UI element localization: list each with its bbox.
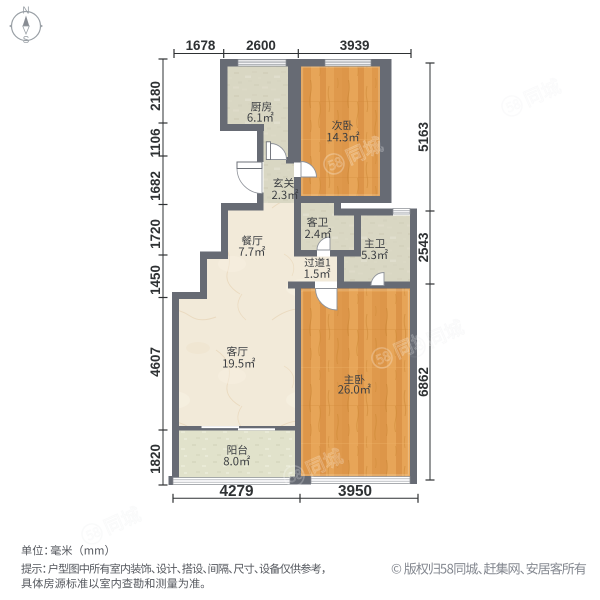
svg-text:1682: 1682	[148, 171, 163, 201]
svg-text:6862: 6862	[416, 367, 431, 397]
svg-text:2543: 2543	[416, 233, 431, 263]
svg-text:4607: 4607	[148, 347, 163, 377]
svg-text:1720: 1720	[148, 219, 163, 249]
svg-text:S: S	[23, 35, 30, 46]
svg-text:1450: 1450	[148, 265, 163, 295]
svg-text:1106: 1106	[148, 128, 163, 157]
svg-text:4279: 4279	[219, 483, 253, 500]
svg-text:3939: 3939	[340, 38, 370, 53]
svg-text:N: N	[22, 6, 29, 17]
svg-text:2600: 2600	[246, 38, 276, 53]
svg-text:1820: 1820	[148, 444, 163, 474]
svg-text:1678: 1678	[186, 38, 216, 53]
svg-text:5163: 5163	[416, 122, 431, 152]
svg-text:3950: 3950	[338, 483, 372, 500]
svg-text:2180: 2180	[148, 81, 163, 111]
